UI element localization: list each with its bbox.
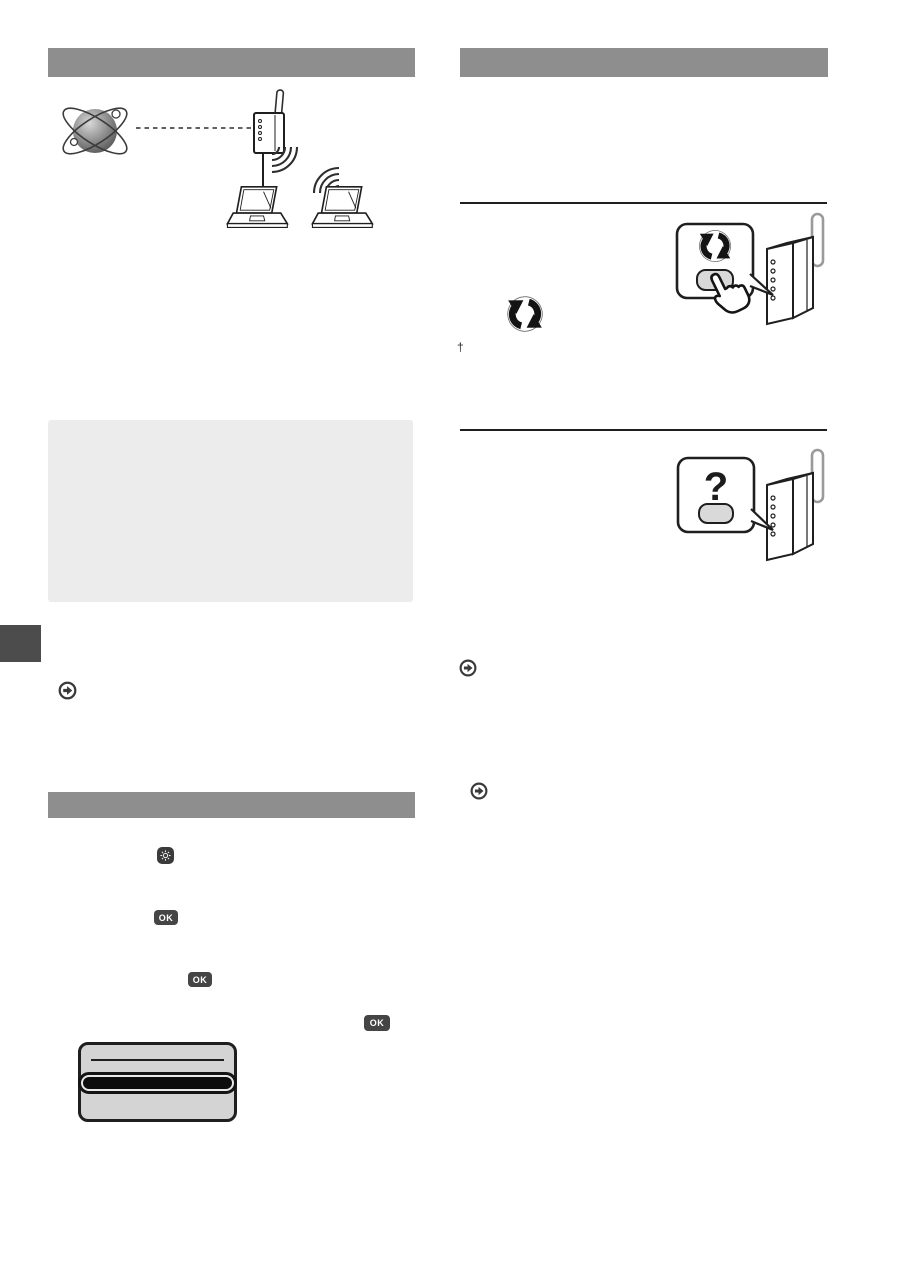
- lcd-display-illustration: [78, 1042, 237, 1122]
- internet-globe-icon: [57, 100, 133, 161]
- footnote-dagger: †: [457, 340, 464, 354]
- lcd-selected-row: [78, 1072, 237, 1094]
- lcd-title-underline: [91, 1059, 224, 1061]
- section-bar-wireless-settings: [460, 48, 828, 77]
- circled-arrow-icon: [58, 681, 77, 700]
- section-divider: [460, 429, 827, 431]
- manual-setup-router-illustration: ?: [676, 440, 836, 568]
- section-bar-connect-wireless-lan: [48, 48, 415, 77]
- ok-key: OK: [364, 1015, 390, 1031]
- lcd-selected-row-fill: [83, 1077, 232, 1089]
- ok-key-label: OK: [193, 975, 208, 985]
- circled-arrow-icon: [470, 782, 488, 800]
- ok-key: OK: [154, 910, 178, 925]
- ok-key-label: OK: [159, 913, 174, 923]
- manual-page: { "page": {"background": "#ffffff"}, "co…: [0, 0, 900, 1271]
- reference-arrow: [58, 681, 77, 700]
- note-box: [48, 420, 413, 602]
- circled-arrow-icon: [459, 659, 477, 677]
- section-bar-operate-machine: [48, 792, 415, 818]
- network-illustration: [48, 90, 415, 250]
- ok-key: OK: [188, 972, 212, 987]
- reference-arrow: [459, 659, 477, 677]
- menu-key: [157, 847, 174, 864]
- reference-arrow: [470, 782, 488, 800]
- gear-key-icon: [159, 849, 172, 862]
- question-mark: ?: [704, 465, 728, 509]
- laptop-icon: [227, 187, 287, 228]
- ok-key-label: OK: [370, 1018, 385, 1028]
- section-divider: [460, 202, 827, 204]
- wireless-router-3d-icon: [767, 214, 823, 324]
- router-button: [699, 504, 733, 523]
- wps-logo-icon: [505, 294, 545, 334]
- wps-router-illustration: [676, 212, 836, 340]
- laptop-icon: [312, 187, 372, 228]
- wireless-router-3d-icon: [767, 450, 823, 560]
- chapter-edge-tab: [0, 625, 41, 662]
- wireless-router-icon: [254, 90, 284, 153]
- inline-wps-logo: [505, 294, 545, 334]
